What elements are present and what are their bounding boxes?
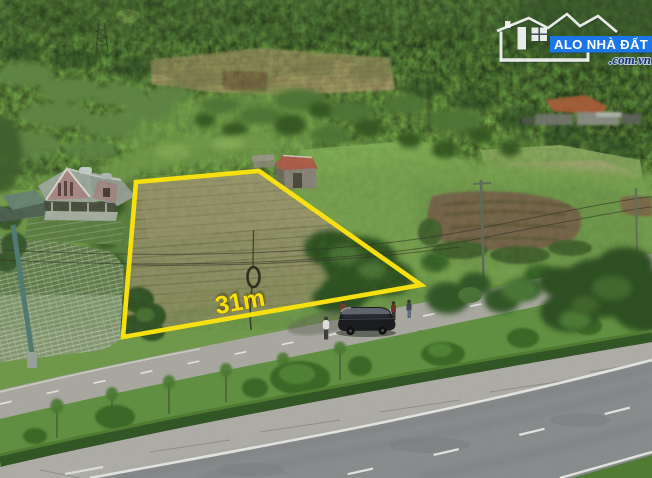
- svg-text:.com.vn: .com.vn: [609, 52, 651, 67]
- svg-text:ALO NHÀ ĐẤT: ALO NHÀ ĐẤT: [554, 37, 648, 52]
